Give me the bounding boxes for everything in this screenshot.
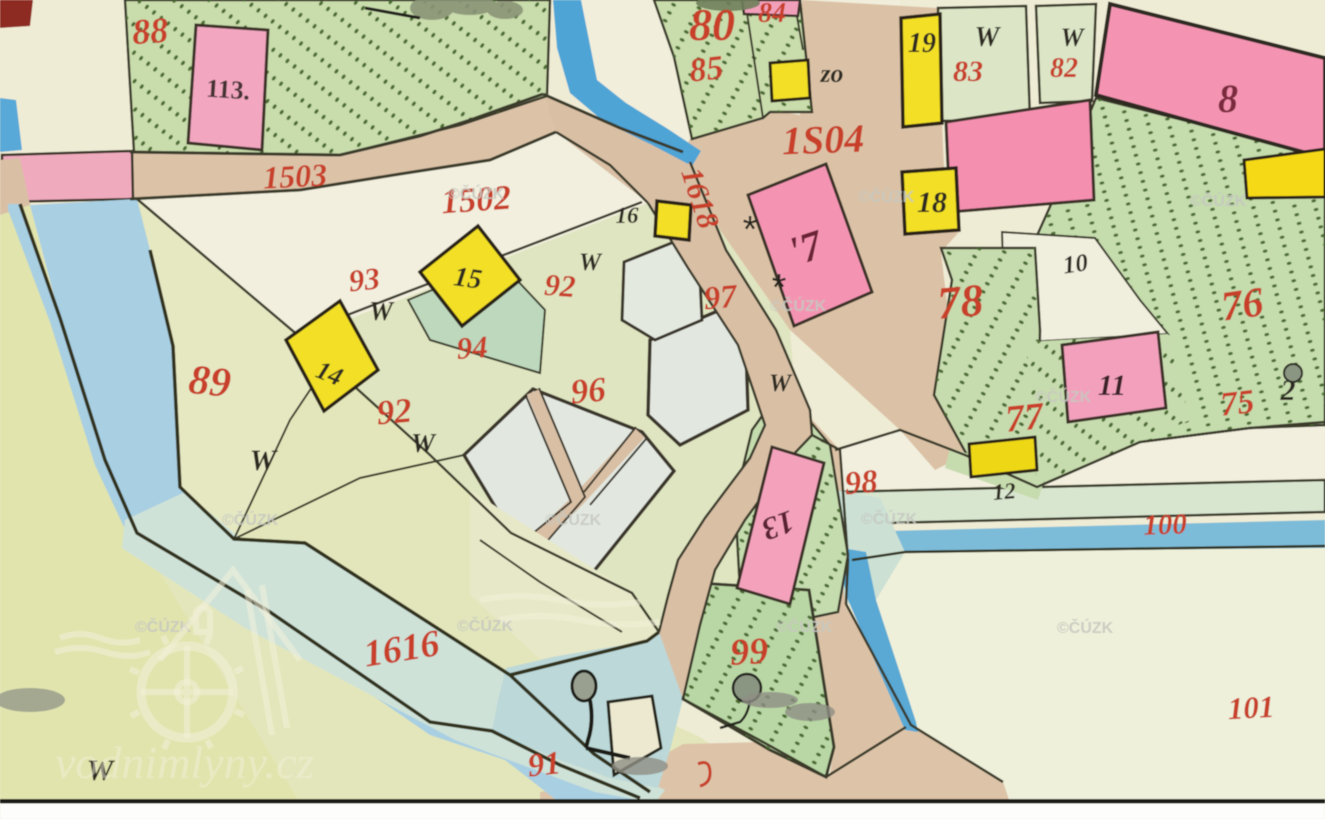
svg-text:©ČÚZK: ©ČÚZK [1190,191,1247,210]
svg-text:101: 101 [1227,689,1275,726]
svg-text:85: 85 [687,49,725,89]
svg-text:80: 80 [689,0,735,50]
svg-text:1S04: 1S04 [781,116,865,164]
svg-text:84: 84 [758,0,786,29]
svg-text:19: 19 [908,28,936,59]
svg-text:*: * [743,209,758,251]
svg-text:W: W [579,249,603,276]
svg-text:91: 91 [526,745,563,784]
svg-text:88: 88 [131,10,170,52]
svg-text:18: 18 [917,186,947,219]
svg-text:W: W [975,22,1002,53]
svg-text:vodnimlyny.cz: vodnimlyny.cz [55,737,314,788]
svg-text:83: 83 [953,55,983,88]
svg-text:82: 82 [1050,53,1078,84]
svg-text:16: 16 [616,203,640,228]
svg-text:W: W [411,428,437,458]
svg-text:1503: 1503 [262,156,328,195]
svg-text:12: 12 [992,478,1017,505]
svg-text:8: 8 [1218,76,1238,121]
svg-text:©ČÚZK: ©ČÚZK [222,510,279,529]
svg-text:©ČÚZK: ©ČÚZK [776,617,833,636]
svg-text:10: 10 [1061,249,1090,279]
svg-text:W: W [369,296,395,326]
svg-text:W: W [769,370,793,397]
svg-text:92: 92 [543,267,576,304]
svg-text:113.: 113. [205,74,251,106]
svg-text:92: 92 [375,391,413,433]
svg-text:94: 94 [455,329,488,366]
svg-text:98: 98 [843,464,879,503]
svg-text:97: 97 [702,278,740,317]
svg-text:75: 75 [1218,383,1256,423]
svg-text:76: 76 [1218,279,1266,330]
svg-text:©ČÚZK: ©ČÚZK [1057,618,1114,637]
svg-text:©ČÚZK: ©ČÚZK [448,184,505,203]
svg-text:©ČÚZK: ©ČÚZK [858,187,915,206]
svg-text:zo: zo [819,59,843,88]
svg-text:©ČÚZK: ©ČÚZK [770,296,827,315]
svg-text:89: 89 [187,357,234,407]
svg-text:©ČÚZK: ©ČÚZK [545,510,602,529]
svg-text:W: W [250,444,279,477]
svg-text:100: 100 [1143,508,1188,541]
svg-text:96: 96 [569,369,608,411]
svg-text:78: 78 [935,274,985,329]
svg-text:©ČÚZK: ©ČÚZK [1035,387,1092,406]
svg-text:93: 93 [347,260,381,298]
svg-text:99: 99 [729,630,769,674]
svg-text:W: W [1060,23,1085,52]
svg-text:15: 15 [452,261,484,296]
svg-text:©ČÚZK: ©ČÚZK [861,509,918,528]
svg-text:11: 11 [1098,369,1126,402]
